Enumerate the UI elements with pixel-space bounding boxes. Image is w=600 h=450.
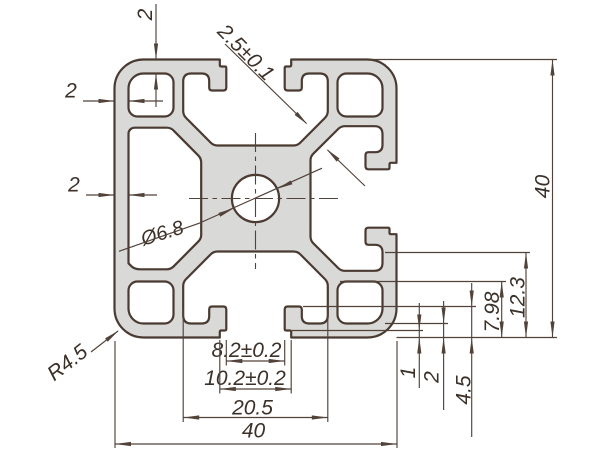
svg-text:2: 2: [67, 174, 80, 197]
svg-text:2: 2: [64, 80, 77, 103]
svg-text:10.2±0.2: 10.2±0.2: [204, 367, 286, 390]
svg-text:40: 40: [532, 175, 555, 199]
svg-text:8.2±0.2: 8.2±0.2: [212, 339, 282, 362]
svg-text:40: 40: [242, 420, 266, 443]
svg-text:20.5: 20.5: [231, 397, 273, 420]
svg-text:2: 2: [421, 371, 444, 384]
svg-text:2: 2: [134, 8, 157, 21]
svg-text:1: 1: [397, 367, 420, 379]
